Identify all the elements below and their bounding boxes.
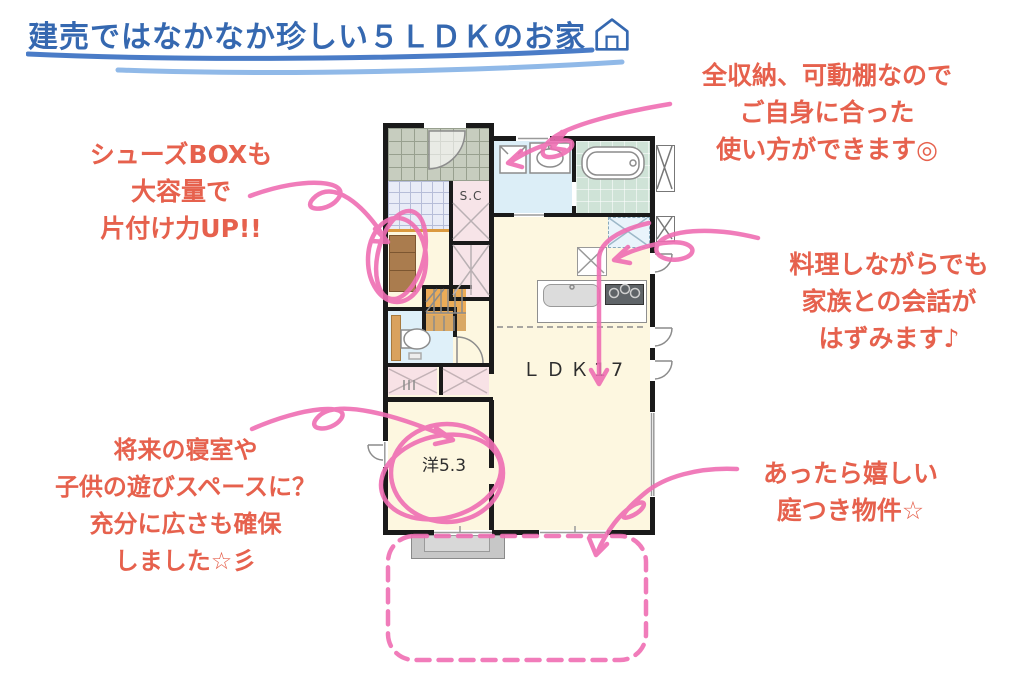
- cooking-arrow: [616, 231, 758, 260]
- future-room-arrow: [252, 409, 452, 439]
- annotation-overlay: [0, 0, 1024, 683]
- flyer-canvas: 建売ではなかなか珍しい５ＬＤＫのお家 全収納、可動棚なので ご自身に合った 使い…: [0, 0, 1024, 683]
- garden-outline: [388, 536, 646, 660]
- pink-marker-annotations: [250, 104, 758, 660]
- garden-arrow: [597, 469, 737, 553]
- shoes-arrow: [250, 183, 386, 240]
- plan-detail-lines: [368, 131, 672, 533]
